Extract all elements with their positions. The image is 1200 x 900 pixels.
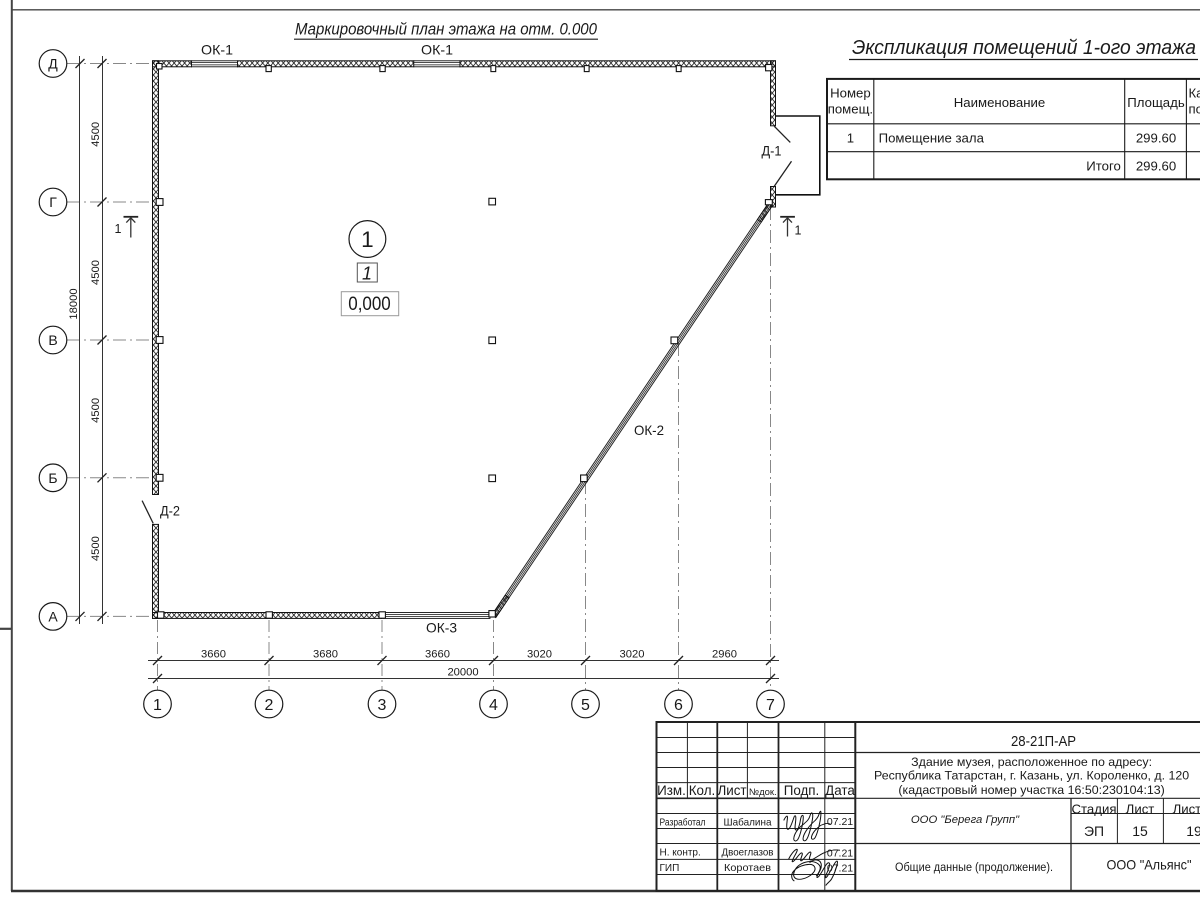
svg-text:18000: 18000 (68, 288, 80, 319)
svg-text:4500: 4500 (90, 260, 102, 285)
svg-text:Экспликация помещений 1-ого эт: Экспликация помещений 1-ого этажа (852, 37, 1196, 59)
svg-text:ОК-3: ОК-3 (426, 620, 457, 636)
svg-text:помеще: помеще (1189, 102, 1200, 117)
svg-text:299.60: 299.60 (1136, 158, 1176, 173)
svg-text:15: 15 (1132, 823, 1148, 839)
svg-text:Лист: Лист (717, 783, 746, 798)
svg-text:А: А (48, 608, 58, 624)
svg-text:3020: 3020 (527, 649, 552, 661)
svg-text:ЭП: ЭП (1084, 823, 1104, 839)
svg-text:0,000: 0,000 (348, 294, 391, 315)
svg-text:4500: 4500 (90, 122, 102, 147)
svg-text:Г: Г (49, 194, 57, 210)
svg-text:Общие данные (продолжение).: Общие данные (продолжение). (895, 860, 1053, 874)
svg-text:Б: Б (48, 470, 57, 486)
svg-text:Д-2: Д-2 (160, 503, 180, 519)
svg-text:Листов: Листов (1173, 802, 1200, 817)
svg-text:5: 5 (581, 697, 590, 714)
svg-text:ООО "Альянс": ООО "Альянс" (1107, 857, 1192, 873)
svg-text:1: 1 (795, 224, 802, 238)
svg-text:Помещение зала: Помещение зала (879, 130, 985, 145)
svg-text:2: 2 (265, 697, 274, 714)
svg-text:Здание музея, расположенное по: Здание музея, расположенное по адресу: (911, 755, 1152, 769)
svg-text:7: 7 (766, 697, 775, 714)
svg-text:Площадь: Площадь (1127, 95, 1185, 110)
svg-text:3680: 3680 (313, 649, 338, 661)
svg-text:3660: 3660 (201, 649, 226, 661)
svg-text:1: 1 (153, 697, 162, 714)
svg-text:Стадия: Стадия (1072, 802, 1117, 817)
svg-text:3020: 3020 (620, 649, 645, 661)
svg-text:№док.: №док. (749, 787, 777, 798)
svg-text:Н. контр.: Н. контр. (660, 848, 701, 859)
svg-text:Наименование: Наименование (954, 95, 1045, 110)
svg-text:3660: 3660 (425, 649, 450, 661)
svg-text:(кадастровый номер участка 16:: (кадастровый номер участка 16:50:230104:… (898, 783, 1164, 797)
svg-text:помещ.: помещ. (828, 102, 873, 117)
svg-text:Двоеглазов: Двоеглазов (722, 847, 774, 859)
svg-text:Шабалина: Шабалина (724, 816, 772, 828)
svg-text:Коротаев: Коротаев (724, 862, 771, 874)
svg-text:07.21: 07.21 (827, 816, 853, 828)
svg-text:2960: 2960 (712, 649, 737, 661)
svg-text:Маркировочный план этажа на от: Маркировочный план этажа на отм. 0.000 (295, 21, 598, 39)
svg-text:Разработал: Разработал (660, 816, 706, 828)
svg-text:1: 1 (115, 222, 122, 236)
svg-text:4500: 4500 (90, 398, 102, 423)
svg-text:Изм.: Изм. (657, 783, 686, 798)
svg-text:299.60: 299.60 (1136, 130, 1176, 145)
svg-text:Д-1: Д-1 (762, 143, 782, 159)
svg-text:Подп.: Подп. (784, 783, 820, 798)
svg-text:Дата: Дата (825, 783, 855, 798)
svg-text:1: 1 (362, 264, 372, 284)
svg-text:4: 4 (489, 697, 498, 714)
svg-text:20000: 20000 (447, 667, 478, 679)
svg-text:1: 1 (361, 227, 374, 252)
svg-text:Д: Д (48, 56, 58, 72)
svg-text:Республика Татарстан, г. Казан: Республика Татарстан, г. Казань, ул. Кор… (874, 769, 1189, 783)
svg-text:07.21: 07.21 (827, 847, 853, 859)
svg-text:3: 3 (378, 697, 387, 714)
svg-text:В: В (48, 332, 57, 348)
svg-text:Кол.: Кол. (689, 783, 716, 798)
svg-text:19: 19 (1186, 823, 1200, 839)
svg-text:ОК-1: ОК-1 (201, 42, 233, 58)
svg-text:ОК-2: ОК-2 (634, 422, 664, 438)
svg-text:6: 6 (674, 697, 683, 714)
svg-text:28-21П-АР: 28-21П-АР (1011, 734, 1076, 750)
svg-text:Номер: Номер (830, 86, 871, 101)
svg-text:Лист: Лист (1126, 802, 1155, 817)
svg-text:1: 1 (847, 130, 854, 145)
svg-text:ГИП: ГИП (660, 863, 680, 874)
svg-text:07.21: 07.21 (827, 862, 853, 874)
svg-text:4500: 4500 (90, 536, 102, 561)
svg-text:Категор: Категор (1189, 86, 1200, 101)
svg-text:Итого: Итого (1086, 158, 1121, 173)
svg-text:ОК-1: ОК-1 (421, 42, 453, 58)
svg-text:ООО "Берега Групп": ООО "Берега Групп" (911, 814, 1020, 826)
